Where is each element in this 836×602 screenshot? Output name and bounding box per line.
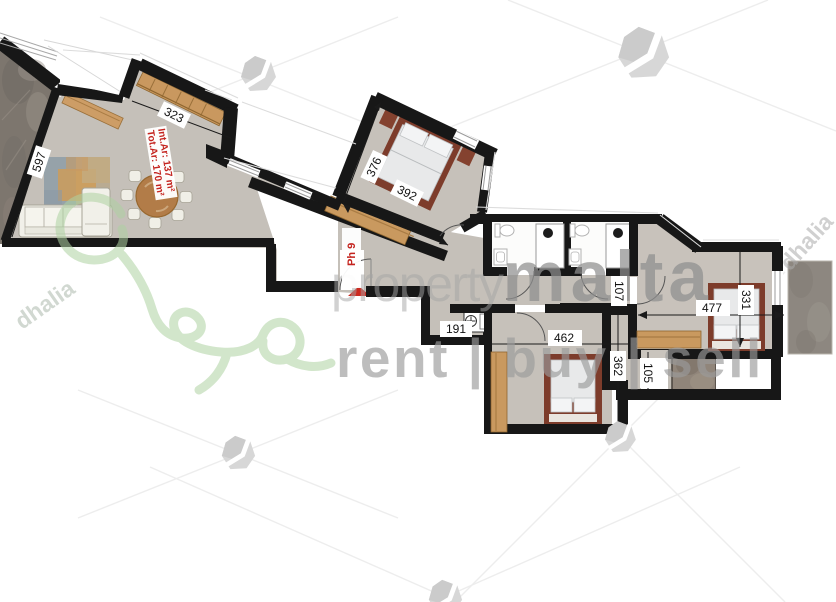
svg-text:dhalia: dhalia (10, 275, 80, 335)
svg-text:107: 107 (612, 281, 626, 301)
svg-text:477: 477 (702, 301, 722, 315)
svg-text:105: 105 (641, 363, 655, 383)
svg-text:191: 191 (446, 322, 466, 336)
svg-text:362: 362 (611, 356, 625, 376)
svg-text:462: 462 (554, 331, 574, 345)
svg-text:Ph 9: Ph 9 (346, 243, 358, 266)
svg-text:331: 331 (739, 290, 753, 310)
